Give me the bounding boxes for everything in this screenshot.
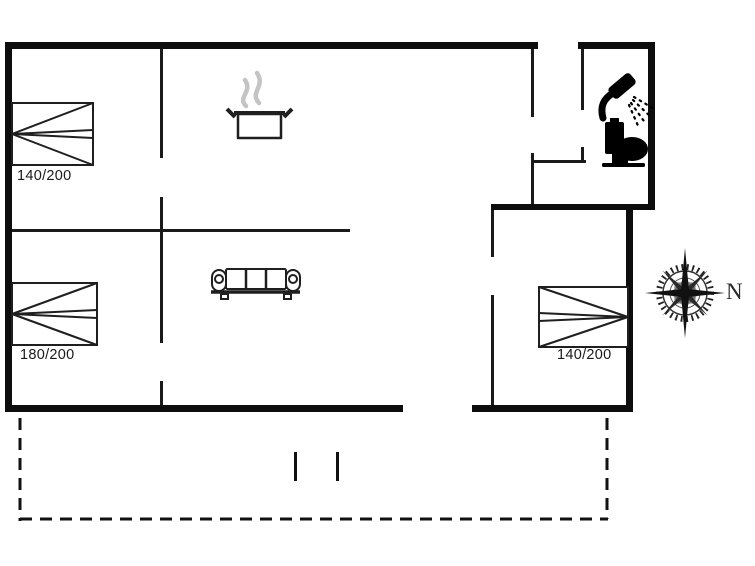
compass-rose-icon: [640, 248, 731, 339]
toilet-icon: [602, 118, 648, 167]
terrace-post: [294, 452, 297, 481]
bed-size-label-bottom-left: 180/200: [20, 347, 75, 363]
sofa-icon: [211, 269, 300, 299]
wall-top-main: [5, 42, 538, 49]
compass-north-label: N: [726, 279, 743, 305]
wall-bedrooms-left-lower: [160, 381, 163, 405]
wall-left: [5, 42, 12, 412]
wall-hall-left-upper: [531, 49, 534, 117]
bed-top-left: [12, 103, 93, 165]
wall-hall-bottom: [531, 160, 586, 163]
bed-size-label-right: 140/200: [557, 347, 612, 363]
sofa-arm-curl: [215, 275, 223, 283]
steam-icon: [243, 73, 260, 106]
bed-right: [539, 287, 628, 347]
terrace-post: [336, 452, 339, 481]
wall-bedrooms-left-upper: [160, 49, 163, 158]
pot-handle-right: [284, 109, 292, 117]
wall-bathroom-right: [648, 42, 655, 210]
cooking-pot-icon: [227, 109, 292, 138]
compass-center: [682, 290, 688, 296]
sofa-foot: [221, 294, 228, 299]
wall-right-bedroom-upper: [491, 210, 494, 257]
steam-wisp: [243, 80, 247, 106]
pot-body: [238, 114, 281, 138]
interior-walls: [12, 49, 586, 405]
sofa-foot: [284, 294, 291, 299]
floor-plan: 140/200 180/200 140/200 N: [0, 0, 755, 566]
floor-plan-drawing: [0, 0, 755, 566]
wall-bottom-left: [5, 405, 403, 412]
pot-handle-left: [227, 109, 235, 117]
wall-left-bedrooms-divider: [12, 229, 350, 232]
terrace-outline: [20, 418, 608, 521]
toilet-base: [602, 163, 645, 167]
wall-bedrooms-left-mid: [160, 197, 163, 343]
sofa-cushions: [226, 269, 286, 289]
wall-step-horizontal: [491, 204, 655, 210]
wall-right-bedroom-lower: [491, 295, 494, 405]
shower-hose: [602, 93, 613, 118]
sofa-arm-curl: [289, 275, 297, 283]
bed-size-label-top-left: 140/200: [17, 168, 72, 184]
steam-wisp: [256, 73, 260, 103]
terrace-posts: [294, 452, 339, 481]
wall-bathroom-left-upper: [581, 49, 584, 110]
bed-bottom-left: [12, 283, 97, 345]
wall-bottom-right: [472, 405, 633, 412]
toilet-stem: [612, 149, 628, 163]
wall-top-bathroom: [578, 42, 655, 49]
